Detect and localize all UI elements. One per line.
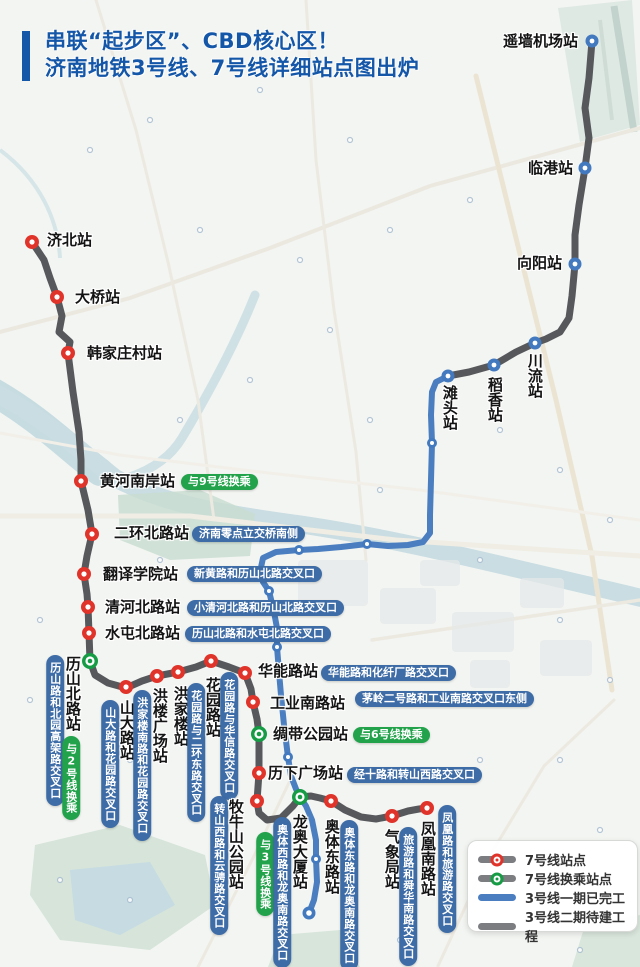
line3-station-dot	[579, 162, 592, 175]
line7-station-dot	[246, 695, 260, 709]
line7-station-dot	[85, 527, 99, 541]
line7-station-dot	[324, 794, 338, 808]
headline-line1: 串联“起步区”、CBD核心区！	[45, 28, 419, 55]
line3-station-dot	[488, 359, 501, 372]
legend-row-line7-transfer: 7号线换乘站点	[478, 869, 627, 888]
legend-label: 3号线二期待建工程	[525, 907, 627, 945]
line3-station-dot	[569, 258, 582, 271]
line3-station-dot	[586, 35, 599, 48]
transfer-station-dot	[292, 789, 308, 805]
line7-station-dot	[250, 794, 264, 808]
legend-label: 3号线一期已完工	[525, 888, 625, 907]
legend-row-line3-built: 3号线一期已完工	[478, 888, 627, 907]
legend-row-line3-planned: 3号线二期待建工程	[478, 907, 627, 945]
headline: 串联“起步区”、CBD核心区！ 济南地铁3号线、7号线详细站点图出炉	[22, 28, 419, 82]
line7-station-dot	[61, 346, 75, 360]
line7-station-dot	[420, 801, 434, 815]
line3-minor-station-dot	[264, 586, 274, 596]
line7-station-dot	[119, 680, 133, 694]
headline-accent-bar	[22, 31, 30, 81]
line3-station-dot	[529, 337, 542, 350]
line7-station-dot	[204, 654, 218, 668]
line7-station-dot	[150, 669, 164, 683]
metro-map-poster: 济北站大桥站韩家庄村站黄河南岸站与9号线换乘二环北路站济南零点立交桥南侧翻译学院…	[0, 0, 640, 967]
line7-station-dot	[81, 600, 95, 614]
line7-station-dot	[25, 235, 39, 249]
line7-station-dot	[171, 665, 185, 679]
line3-planned-symbol	[478, 923, 516, 930]
legend-row-line7-station: 7号线站点	[478, 850, 627, 869]
line7-station-dot	[50, 290, 64, 304]
line7-station-symbol	[478, 856, 516, 863]
line3-minor-station-dot	[272, 642, 282, 652]
line7-transfer-dot-icon	[491, 872, 504, 885]
line3-station-dot	[442, 370, 455, 383]
line3-terminus-dot	[303, 907, 316, 920]
line7-transfer-symbol	[478, 875, 516, 882]
line3-minor-station-dot	[362, 539, 372, 549]
line7-station-dot-icon	[491, 853, 504, 866]
line7-station-dot	[252, 766, 266, 780]
transfer-station-dot	[82, 653, 98, 669]
line3-minor-station-dot	[294, 545, 304, 555]
line3-built-symbol	[478, 894, 516, 901]
headline-line2: 济南地铁3号线、7号线详细站点图出炉	[45, 55, 419, 82]
line3-minor-station-dot	[311, 854, 321, 864]
line7-station-dot	[238, 666, 252, 680]
map-background	[0, 0, 640, 967]
line3-minor-station-dot	[427, 438, 437, 448]
legend-label: 7号线换乘站点	[525, 869, 612, 888]
line3-minor-station-dot	[283, 752, 293, 762]
map-canvas	[0, 0, 640, 967]
line7-station-dot	[77, 567, 91, 581]
transfer-station-dot	[251, 726, 267, 742]
line7-station-dot	[385, 809, 399, 823]
legend-label: 7号线站点	[525, 850, 586, 869]
line7-station-dot	[74, 474, 88, 488]
line7-station-dot	[82, 626, 96, 640]
legend: 7号线站点 7号线换乘站点 3号线一期已完工 3号线二期待建工程	[467, 840, 638, 932]
